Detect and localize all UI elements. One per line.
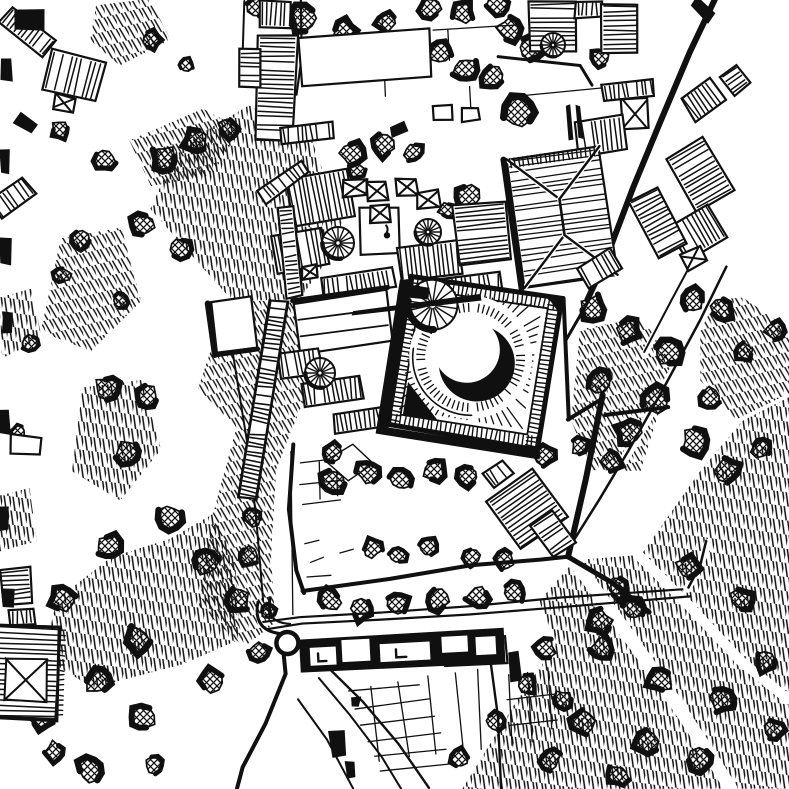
tree [324,442,342,463]
garden-plot-line [307,575,331,577]
roof-hatch-line [531,31,575,32]
gate-range-building [276,621,506,675]
roof-hatch-line [262,3,263,25]
conical-roof [305,358,335,388]
tree [248,642,270,661]
tree [146,756,162,774]
building-xroof [369,204,391,223]
tree [486,0,508,16]
tree [423,461,444,482]
building-footprint [452,200,512,266]
building-xroof [395,178,418,197]
building-footprint [679,77,726,122]
building-plan [461,107,480,122]
tree [751,439,770,458]
tree [504,96,535,127]
ink-blob-shape [13,111,39,135]
building-hatch [720,64,752,96]
tree [199,667,222,693]
tree [290,5,316,32]
tree [486,711,504,731]
tree [419,538,436,555]
range-room [380,642,431,663]
building-whiteplain [208,296,259,355]
ink-blob [351,697,361,707]
tree [226,589,248,610]
ink-blob [0,58,12,81]
roof-hatch-line [241,57,259,58]
range-room [310,646,337,665]
tree [99,534,122,557]
range-room [475,636,496,655]
tree [77,757,101,783]
tree [495,549,514,570]
ink-blob-shape [351,697,361,707]
eave-tick [57,695,63,696]
ink-blob-shape [0,58,12,81]
eave-tick [58,674,64,675]
roof-hatch-line [604,15,636,16]
building-footprint [210,296,258,353]
garden-plot-line [305,540,319,544]
garden-plot-line [349,685,419,691]
ink-blob [0,410,11,435]
garden-plot-line [340,549,353,553]
roof-hatch-line [241,81,259,82]
town-wall [564,298,569,419]
tree [158,506,183,531]
building-hatch [452,200,512,266]
tree [356,463,380,484]
building-hatch [601,4,637,53]
range-room [341,639,370,662]
roof-hatch-line [284,3,285,25]
tree [351,599,372,623]
ink-blob [508,651,522,683]
ink-blob-shape [566,104,574,140]
ink-blob-shape [508,651,522,683]
tree [404,145,423,161]
roof-hatch-line [604,6,636,7]
eave-tick [57,690,63,691]
building-hatch [42,49,106,103]
tree [481,66,502,87]
garden-plot-line [368,733,441,742]
tree [52,122,67,139]
tree [450,747,468,766]
ink-blob-shape [1,588,15,607]
ink-blob-shape [0,237,12,265]
tree [387,595,409,614]
ink-blob-shape [328,730,347,758]
ink-blob [566,104,574,140]
range-room [441,636,468,653]
roof-hatch-line [604,30,636,31]
tree [710,299,732,320]
road-edge [329,669,428,788]
tree [320,587,342,609]
tree [457,467,477,488]
ink-blob-shape [0,410,11,435]
tree [428,589,450,613]
ink-blob [328,730,347,758]
town-wall [289,444,304,593]
garden-plot-line [303,500,341,505]
tree [418,0,441,19]
ink-blob [0,506,9,531]
ink-blob [14,9,44,31]
eave-tick [58,679,64,680]
garden-plot-line [311,557,324,562]
tree [87,668,111,691]
tree [496,17,522,43]
tree [465,587,490,607]
ink-blob [1,588,15,607]
building-hatch [0,175,36,220]
tree [389,470,412,488]
ink-blob [13,111,39,135]
eave-tick [58,660,64,661]
building-hatch [259,0,292,28]
tree [364,538,383,558]
building-xroof [416,189,441,209]
tree [534,639,556,658]
tree [93,151,116,169]
hand-drawn-birdseye-town-map [0,0,789,789]
roof-hatch-line [241,63,259,64]
tree [114,293,129,308]
building-barn [0,625,66,721]
eave-tick [59,655,65,656]
building-plan [298,28,432,86]
tree [758,652,775,674]
tree [389,548,408,562]
building-hatch [679,77,726,122]
building-whiteridge [293,287,396,354]
tree [683,429,707,457]
tree [589,369,610,392]
building-footprint [298,28,432,86]
roof-hatch-line [241,75,259,76]
tree [138,386,157,408]
tree [429,41,451,62]
town-wall [580,66,592,85]
ink-blob-shape [2,311,13,333]
conical-roof [541,33,565,57]
map-canvas [0,0,789,789]
ink-blob-shape [14,9,44,31]
tree [262,604,276,618]
tree [71,231,89,251]
building-hatch [574,1,602,18]
tree [683,287,702,311]
building-hatch [238,48,262,87]
tree [44,740,63,763]
garden-plot-line [428,676,436,754]
tree [554,691,571,709]
bastion-turret [276,631,299,654]
tree [453,60,478,78]
tree [349,163,365,178]
garden-plot-line [455,673,463,750]
tree [116,442,139,465]
building-xroof [367,181,389,201]
tree [23,335,39,352]
conical-roof [322,227,354,259]
building-footprint [720,64,752,96]
conical-roof [415,219,441,245]
building-plan [433,105,453,121]
ink-blob-shape [0,506,9,531]
tree [656,340,682,364]
eave-tick [58,665,64,666]
roof-hatch-line [604,25,636,26]
tree [240,546,257,566]
ink-blob-shape [0,149,10,174]
garden-plot-line [361,716,435,725]
tree [573,437,589,454]
terrain-hatch [41,228,141,351]
ink-blob [2,311,13,333]
roof-hatch-line [604,44,636,45]
building-hatch [9,608,36,627]
garden-plot-line [525,87,609,95]
eave-tick [57,714,63,715]
ink-blob [0,237,12,265]
garden-plot-line [478,669,482,749]
roof-hatch-line [266,3,267,25]
tree [131,214,155,235]
building-hatch [665,136,734,212]
building-plan [9,434,42,457]
tree [505,581,524,601]
tree [689,748,712,774]
building-xroof [300,264,318,280]
town-wall [303,557,568,591]
building-footprint [9,434,42,457]
building-xroof [621,98,649,129]
eave-tick [59,635,65,636]
tree [182,129,206,151]
tree [96,378,120,400]
tree [179,58,193,71]
building-footprint [433,105,453,121]
roof-hatch-line [531,8,575,9]
building-xroof [341,178,368,197]
ink-blob [388,121,409,138]
ink-blob [0,149,10,174]
tree [153,147,174,172]
ink-blob-shape [388,121,409,138]
tree [646,669,671,689]
building-footprint [461,107,480,122]
tree [453,3,473,24]
eave-tick [57,705,63,706]
tree [170,239,192,259]
roof-hatch-line [241,66,259,67]
tree [132,706,155,728]
eave-tick [58,684,64,685]
tree [373,134,395,159]
